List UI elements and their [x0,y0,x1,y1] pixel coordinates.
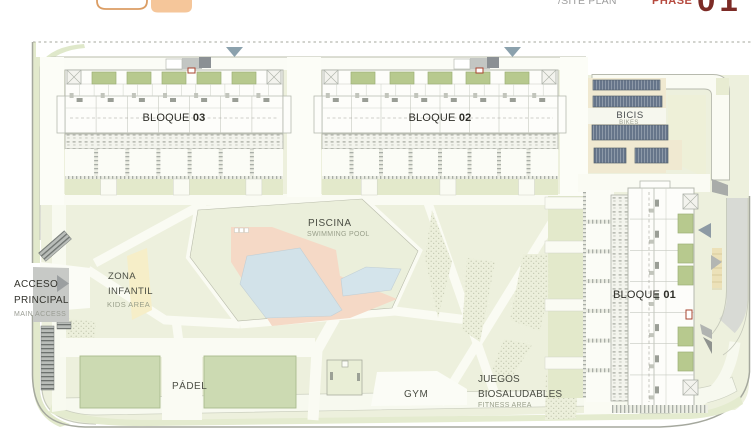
svg-text:INFANTIL: INFANTIL [108,286,153,297]
svg-text:SWIMMING POOL: SWIMMING POOL [307,231,370,238]
svg-text:BLOQUE 02: BLOQUE 02 [409,112,472,124]
svg-text:BIKES: BIKES [619,120,639,126]
svg-text:BLOQUE 03: BLOQUE 03 [143,112,206,124]
svg-text:ACCESO: ACCESO [14,279,58,290]
svg-text:ZONA: ZONA [108,271,136,282]
svg-text:GYM: GYM [404,389,428,400]
svg-text:BIOSALUDABLES: BIOSALUDABLES [478,389,562,400]
svg-text:PISCINA: PISCINA [308,218,352,229]
svg-text:MAIN ACCESS: MAIN ACCESS [14,311,66,318]
svg-text:BLOQUE 01: BLOQUE 01 [613,289,676,301]
svg-text:JUEGOS: JUEGOS [478,374,520,385]
svg-text:PRINCIPAL: PRINCIPAL [14,295,69,306]
svg-text:KIDS AREA: KIDS AREA [107,300,150,309]
svg-text:FITNESS AREA: FITNESS AREA [478,402,532,409]
svg-text:PÁDEL: PÁDEL [172,379,207,392]
